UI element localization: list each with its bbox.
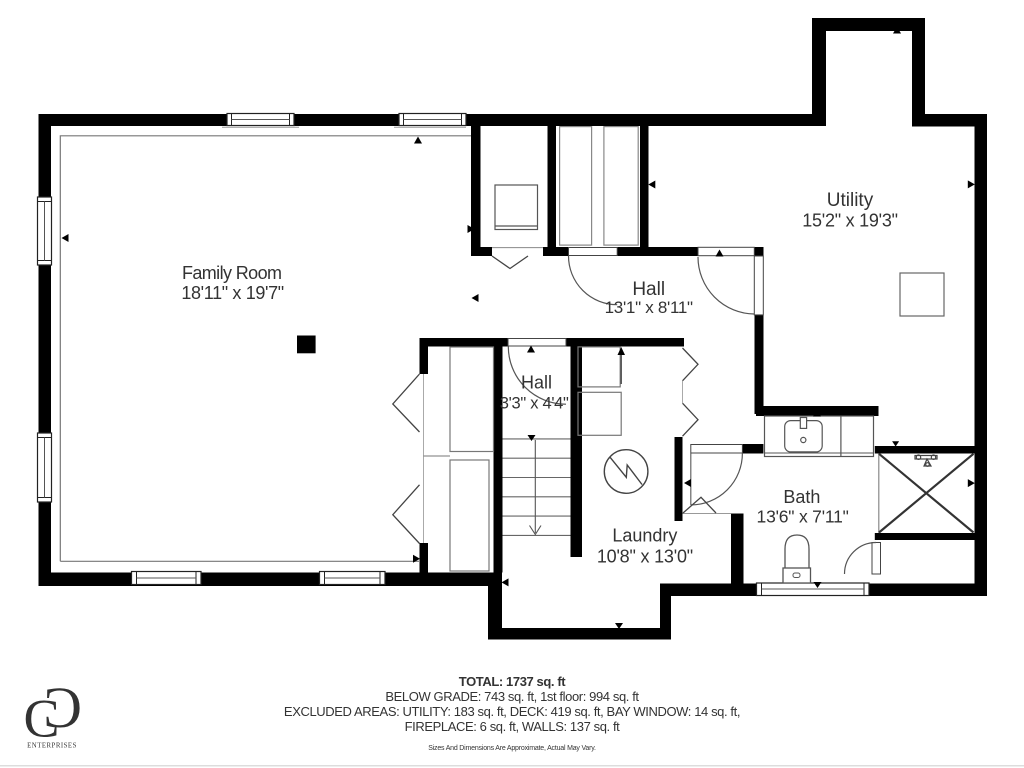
svg-text:EXCLUDED AREAS: UTILITY: 183 s: EXCLUDED AREAS: UTILITY: 183 sq. ft, DEC… [284,704,740,719]
svg-text:Laundry: Laundry [612,526,677,546]
svg-text:10'8" x 13'0": 10'8" x 13'0" [597,546,693,566]
svg-text:Sizes And Dimensions Are Appro: Sizes And Dimensions Are Approximate, Ac… [428,745,596,752]
svg-text:C: C [43,675,82,740]
svg-text:13'6" x 7'11": 13'6" x 7'11" [757,506,849,526]
svg-text:Utility: Utility [827,190,874,211]
svg-text:Hall: Hall [632,279,665,300]
svg-text:TOTAL: 1737 sq. ft: TOTAL: 1737 sq. ft [459,674,567,689]
svg-text:15'2" x 19'3": 15'2" x 19'3" [802,211,897,231]
svg-text:FIREPLACE: 6 sq. ft, WALLS: 13: FIREPLACE: 6 sq. ft, WALLS: 137 sq. ft [405,719,621,734]
svg-text:BELOW GRADE: 743 sq. ft, 1st f: BELOW GRADE: 743 sq. ft, 1st floor: 994 … [385,689,639,704]
svg-text:Hall: Hall [521,372,552,392]
svg-text:18'11" x 19'7": 18'11" x 19'7" [181,283,284,303]
svg-text:Family Room: Family Room [182,263,281,283]
svg-text:Bath: Bath [783,487,820,507]
svg-text:13'1" x 8'11": 13'1" x 8'11" [605,298,693,317]
svg-text:ENTERPRISES: ENTERPRISES [27,743,77,750]
svg-text:3'3" x 4'4": 3'3" x 4'4" [500,394,569,412]
